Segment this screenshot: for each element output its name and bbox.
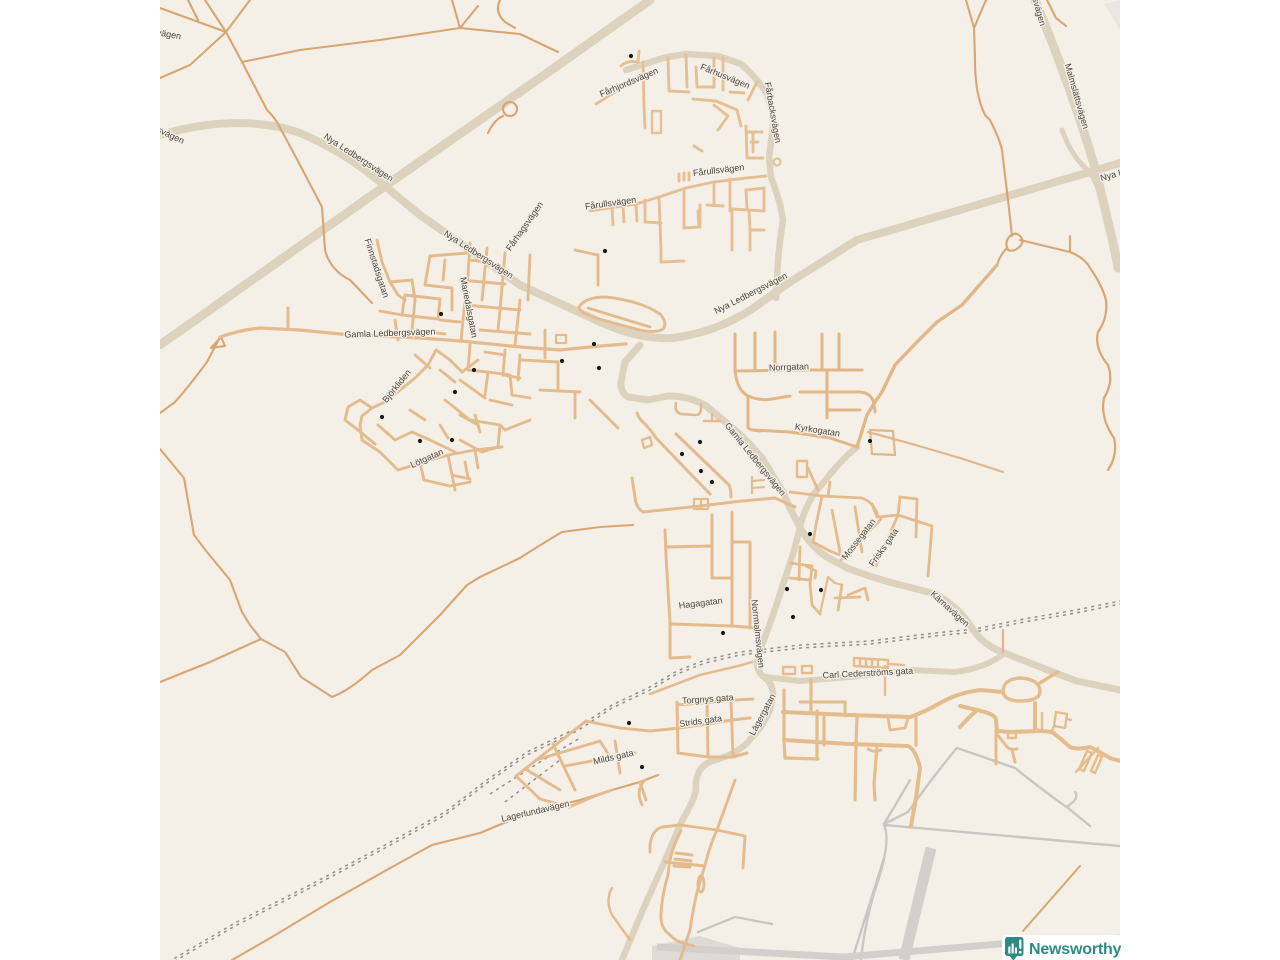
svg-text:Newsworthy: Newsworthy (1029, 941, 1122, 958)
svg-text:Norrgatan: Norrgatan (769, 361, 809, 372)
